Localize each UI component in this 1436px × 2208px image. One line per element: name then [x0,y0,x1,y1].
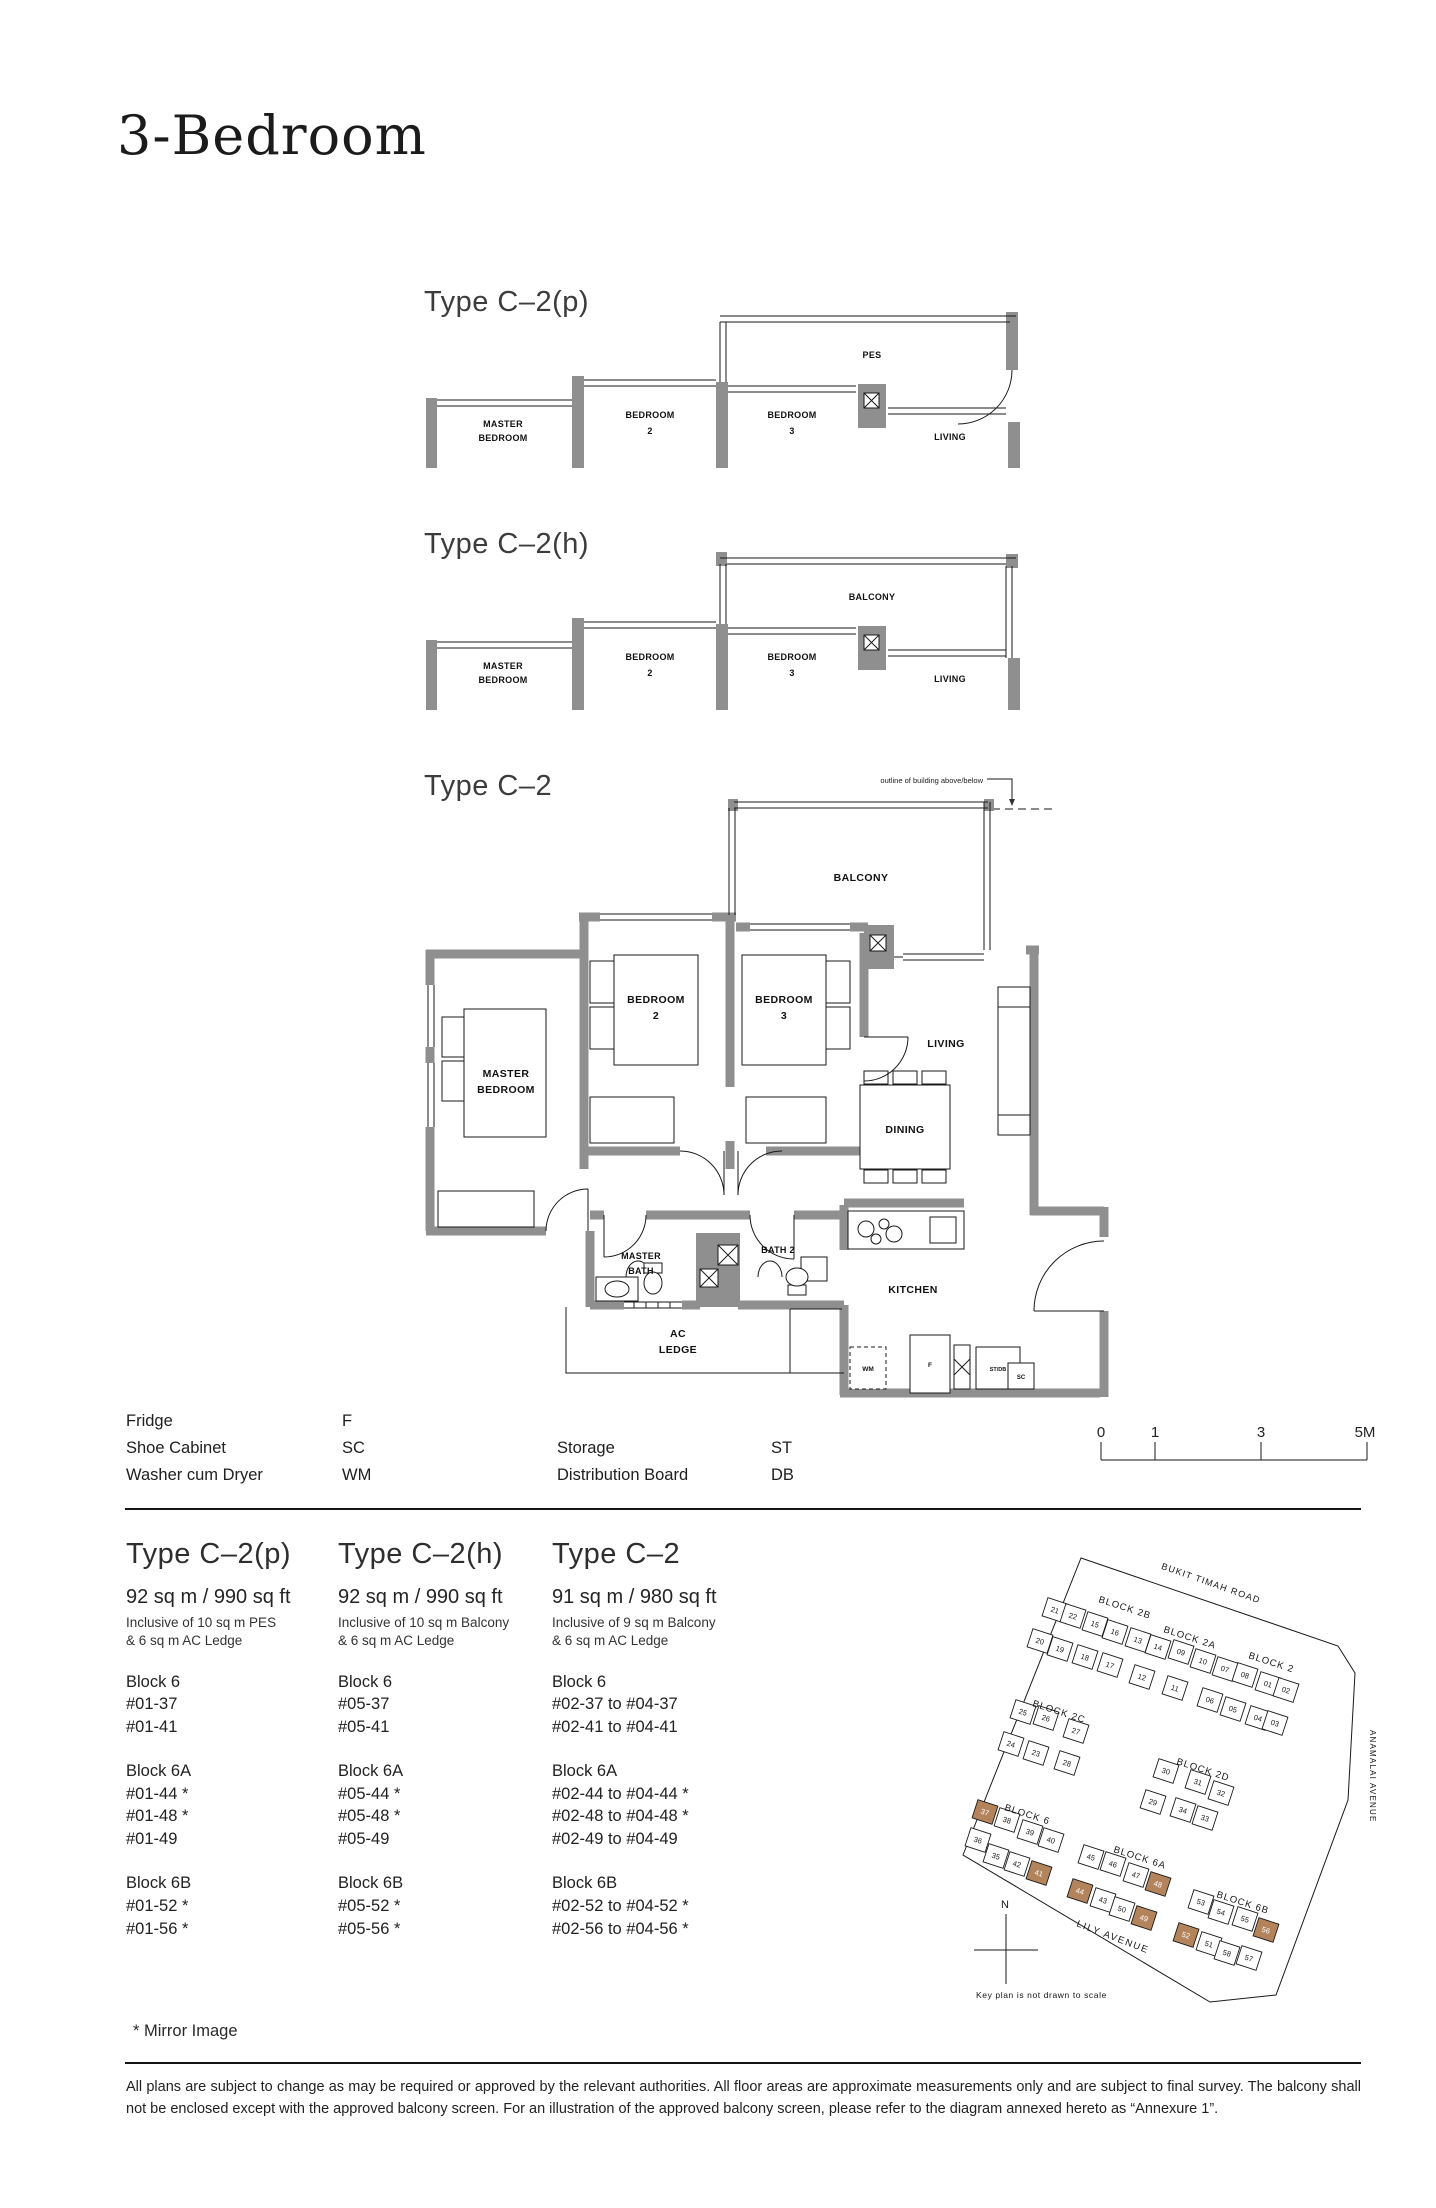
unit-type-column: Type C–291 sq m / 980 sq ftInclusive of … [552,1538,764,1940]
svg-text:BEDROOM: BEDROOM [767,652,816,662]
scale-tick-1: 1 [1151,1424,1159,1441]
label-master-bath: MASTER [621,1251,661,1261]
divider-top [125,1508,1361,1510]
block-name: Block 6B [552,1872,764,1895]
legend-item-label: Washer cum Dryer [126,1466,342,1485]
block-name: Block 6B [338,1872,552,1895]
label-stdb: ST/DB [990,1367,1007,1373]
unit-type-name: Type C–2 [552,1538,764,1571]
legend-item-code: F [342,1412,352,1431]
unit-number: #01-44 * [126,1783,338,1806]
svg-text:BEDROOM: BEDROOM [478,675,527,685]
unit-number: #05-49 [338,1828,552,1851]
keyplan-unit: 37 [972,1800,998,1825]
block-group: Block 6B#05-52 *#05-56 * [338,1872,552,1940]
unit-number: #05-48 * [338,1805,552,1828]
inclusive-line: Inclusive of 10 sq m PES [126,1614,338,1632]
block-name: Block 6 [338,1671,552,1694]
block-name: Block 6B [126,1872,338,1895]
floorplan-c2-main: outline of building above/below [398,745,1160,1400]
keyplan-unit: 40 [1038,1828,1064,1853]
legend-row: Washer cum DryerWM [126,1466,371,1493]
unit-type-columns: Type C–2(p)92 sq m / 990 sq ftInclusive … [126,1538,764,1940]
unit-number: #05-52 * [338,1895,552,1918]
unit-type-area: 92 sq m / 990 sq ft [126,1586,338,1609]
c2p-master-label: MASTER [483,419,523,429]
legend-item-code: ST [771,1439,792,1458]
unit-type-inclusive: Inclusive of 10 sq m Balcony& 6 sq m AC … [338,1614,552,1650]
unit-type-inclusive: Inclusive of 9 sq m Balcony& 6 sq m AC L… [552,1614,764,1650]
block-group: Block 6B#02-52 to #04-52 *#02-56 to #04-… [552,1872,764,1940]
legend-row: FridgeF [126,1412,371,1439]
unit-type-name: Type C–2(h) [338,1538,552,1571]
keyplan-units: 2122151620191817BLOCK 2B131409101211BLOC… [965,1594,1299,1970]
block-group: Block 6A#01-44 *#01-48 *#01-49 [126,1760,338,1851]
keyplan-unit: 49 [1131,1906,1157,1931]
road-anamalai: ANAMALAI AVENUE [1368,1730,1377,1823]
block-group: Block 6B#01-52 *#01-56 * [126,1872,338,1940]
block-group: Block 6A#02-44 to #04-44 *#02-48 to #04-… [552,1760,764,1851]
unit-number: #01-52 * [126,1895,338,1918]
svg-text:BEDROOM: BEDROOM [477,1084,535,1096]
block-name: Block 6 [552,1671,764,1694]
legend-item-label: Fridge [126,1412,342,1431]
unit-type-area: 92 sq m / 990 sq ft [338,1586,552,1609]
keyplan-unit: 42 [1004,1852,1030,1877]
svg-text:LEDGE: LEDGE [659,1344,697,1356]
label-living: LIVING [927,1038,964,1050]
svg-text:BEDROOM: BEDROOM [478,433,527,443]
keyplan-unit: 30 [1153,1759,1179,1784]
keyplan-unit: 41 [1026,1861,1052,1886]
unit-type-column: Type C–2(h)92 sq m / 990 sq ftInclusive … [338,1538,552,1940]
unit-number: #02-48 to #04-48 * [552,1805,764,1828]
block-name: Block 6A [338,1760,552,1783]
unit-number: #02-44 to #04-44 * [552,1783,764,1806]
svg-text:2: 2 [647,668,652,678]
keyplan-unit: 56 [1253,1918,1279,1943]
c2h-balcony-label: BALCONY [849,592,896,602]
label-ac-ledge: AC [670,1328,686,1340]
scale-tick-3: 3 [1257,1424,1265,1441]
keyplan-unit: 17 [1097,1653,1123,1678]
svg-text:2: 2 [647,426,652,436]
label-dining: DINING [885,1124,924,1136]
inclusive-line: & 6 sq m AC Ledge [126,1632,338,1650]
keyplan-unit: 10 [1190,1649,1216,1674]
label-fridge: F [928,1362,932,1369]
legend-row: Distribution BoardDB [557,1466,794,1493]
svg-text:BATH: BATH [628,1266,654,1276]
unit-number: #05-37 [338,1693,552,1716]
c2p-living-label: LIVING [934,432,966,442]
svg-text:MASTER: MASTER [621,1251,661,1261]
keyplan-unit: 18 [1072,1645,1098,1670]
road-bukit-timah: BUKIT TIMAH ROAD [1160,1561,1262,1605]
svg-text:3: 3 [789,668,794,678]
unit-type-column: Type C–2(p)92 sq m / 990 sq ftInclusive … [126,1538,338,1940]
svg-text:BEDROOM: BEDROOM [755,994,813,1006]
keyplan-unit: 52 [1173,1923,1199,1948]
label-bath-2: BATH 2 [761,1245,795,1255]
legend-item-label: Distribution Board [557,1466,771,1485]
keyplan-unit: 44 [1067,1879,1093,1904]
unit-number: #05-56 * [338,1918,552,1941]
legend-item-code: DB [771,1466,794,1485]
keyplan-unit: 48 [1145,1872,1171,1897]
unit-number: #02-37 to #04-37 [552,1693,764,1716]
unit-number: #05-41 [338,1716,552,1739]
svg-text:3: 3 [781,1010,787,1022]
c2p-bed2-label: BEDROOM [625,410,674,420]
c2h-walls [426,552,1020,710]
legend-item-code: SC [342,1439,365,1458]
unit-number: #02-49 to #04-49 [552,1828,764,1851]
c2p-pes-label: PES [863,350,882,360]
unit-number: #02-41 to #04-41 [552,1716,764,1739]
svg-text:BEDROOM: BEDROOM [625,410,674,420]
unit-number: #01-49 [126,1828,338,1851]
unit-number: #01-41 [126,1716,338,1739]
block-name: Block 6 [126,1671,338,1694]
unit-type-area: 91 sq m / 980 sq ft [552,1586,764,1609]
disclaimer-text: All plans are subject to change as may b… [126,2076,1361,2121]
svg-text:AC: AC [670,1328,686,1340]
svg-text:BEDROOM: BEDROOM [767,410,816,420]
svg-text:3: 3 [789,426,794,436]
label-balcony: BALCONY [834,872,889,884]
key-plan: BUKIT TIMAH ROAD ANAMALAI AVENUE LILY AV… [958,1540,1408,2010]
keyplan-unit: 12 [1129,1665,1155,1690]
inclusive-line: Inclusive of 9 sq m Balcony [552,1614,764,1632]
keyplan-unit: 47 [1123,1863,1149,1888]
block-name: Block 6A [126,1760,338,1783]
legend-item-label: Shoe Cabinet [126,1439,342,1458]
keyplan-caption: Key plan is not drawn to scale [976,1990,1107,2000]
svg-text:MASTER: MASTER [483,419,523,429]
mirror-image-note: * Mirror Image [133,2022,238,2041]
block-group: Block 6#01-37#01-41 [126,1671,338,1739]
keyplan-unit: 57 [1236,1946,1262,1971]
keyplan-boundary [963,1558,1355,2002]
legend-row: StorageST [557,1439,794,1466]
c2h-master-label: MASTER [483,661,523,671]
label-bedroom-3: BEDROOM [755,994,813,1006]
svg-text:2: 2 [653,1010,659,1022]
unit-number: #02-52 to #04-52 * [552,1895,764,1918]
scale-bar: 0 1 3 5M [1093,1422,1383,1470]
label-kitchen: KITCHEN [888,1284,937,1296]
legend-row: Shoe CabinetSC [126,1439,371,1466]
scale-tick-0: 0 [1097,1424,1105,1441]
c2h-bed2-label: BEDROOM [625,652,674,662]
svg-text:MASTER: MASTER [483,1068,530,1080]
c2h-living-label: LIVING [934,674,966,684]
page-title: 3-Bedroom [117,104,427,167]
keyplan-unit: 29 [1140,1790,1166,1815]
block-group: Block 6A#05-44 *#05-48 *#05-49 [338,1760,552,1851]
outline-annotation: outline of building above/below [880,776,1056,809]
inclusive-line: & 6 sq m AC Ledge [338,1632,552,1650]
label-master-bedroom: MASTER [483,1068,530,1080]
unit-type-inclusive: Inclusive of 10 sq m PES& 6 sq m AC Ledg… [126,1614,338,1650]
compass-n: N [1001,1899,1009,1911]
unit-number: #05-44 * [338,1783,552,1806]
keyplan-unit: 06 [1197,1688,1223,1713]
label-wm: WM [862,1366,874,1373]
unit-number: #02-56 to #04-56 * [552,1918,764,1941]
block-group: Block 6#05-37#05-41 [338,1671,552,1739]
keyplan-unit: 32 [1208,1781,1234,1806]
unit-number: #01-56 * [126,1918,338,1941]
compass: N [974,1899,1038,1984]
block-name: Block 6A [552,1760,764,1783]
label-sc: SC [1017,1375,1026,1381]
furniture [438,955,1034,1393]
inclusive-line: Inclusive of 10 sq m Balcony [338,1614,552,1632]
c2p-bed3-label: BEDROOM [767,410,816,420]
svg-text:BEDROOM: BEDROOM [627,994,685,1006]
scale-tick-5m: 5M [1355,1424,1376,1441]
keyplan-unit: 28 [1054,1751,1080,1776]
c2p-walls [426,312,1020,468]
c2h-bed3-label: BEDROOM [767,652,816,662]
keyplan-unit: 45 [1078,1845,1104,1870]
keyplan-unit: 11 [1162,1676,1188,1701]
svg-text:outline of building above/belo: outline of building above/below [880,776,983,785]
inclusive-line: & 6 sq m AC Ledge [552,1632,764,1650]
divider-bottom [125,2062,1361,2064]
block-group: Block 6#02-37 to #04-37#02-41 to #04-41 [552,1671,764,1739]
legend-left: FridgeFShoe CabinetSCWasher cum DryerWM [126,1412,371,1493]
unit-number: #01-48 * [126,1805,338,1828]
legend-item-code: WM [342,1466,371,1485]
unit-number: #01-37 [126,1693,338,1716]
keyplan-unit: 34 [1170,1798,1196,1823]
keyplan-unit: 24 [998,1732,1024,1757]
c2p-pes-door-arc [958,370,1012,424]
svg-text:MASTER: MASTER [483,661,523,671]
keyplan-unit: 23 [1023,1741,1049,1766]
label-bedroom-2: BEDROOM [627,994,685,1006]
svg-text:BEDROOM: BEDROOM [625,652,674,662]
unit-type-name: Type C–2(p) [126,1538,338,1571]
floorplan-c2h: MASTER BEDROOM BEDROOM 2 BEDROOM 3 BALCO… [420,538,1040,710]
legend-right: StorageSTDistribution BoardDB [557,1439,794,1493]
floorplan-c2p: MASTER BEDROOM BEDROOM 2 BEDROOM 3 PES L… [420,296,1040,468]
floorplan-page: 3-Bedroom Type C–2(p) MASTER BEDROOM BED… [0,0,1436,2208]
legend-item-label: Storage [557,1439,771,1458]
keyplan-unit: 05 [1220,1697,1246,1722]
keyplan-unit: 33 [1192,1806,1218,1831]
